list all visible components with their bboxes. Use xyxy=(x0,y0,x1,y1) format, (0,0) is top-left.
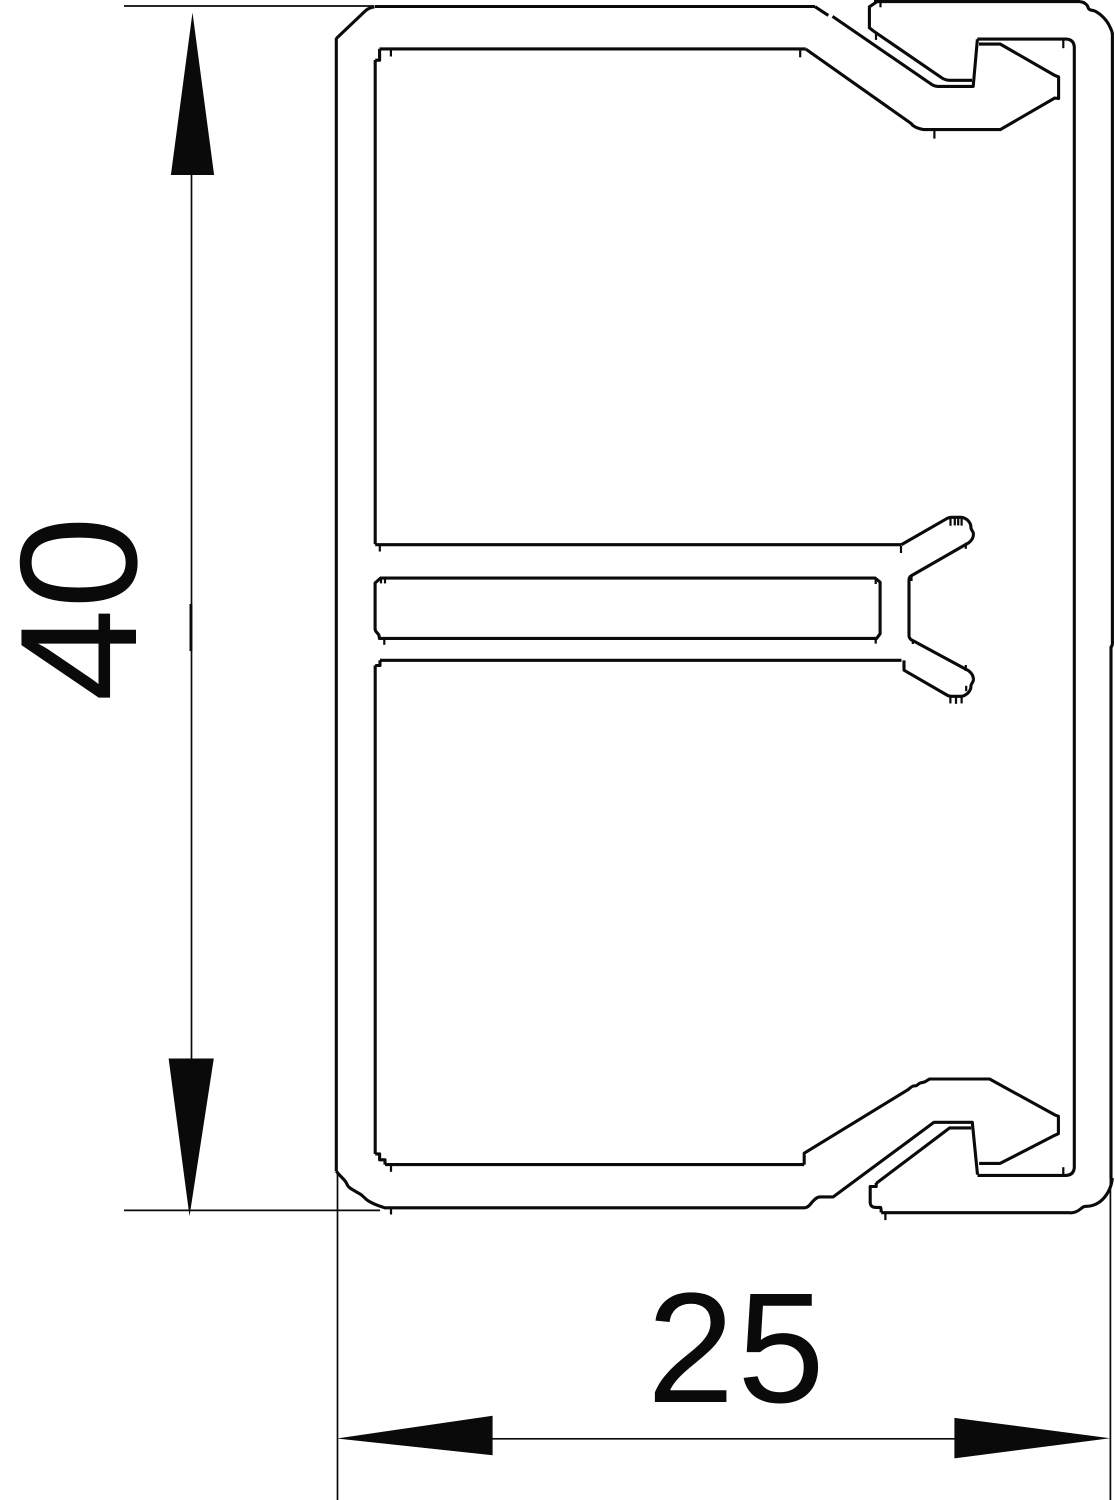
svg-text:25: 25 xyxy=(647,1261,828,1436)
svg-text:40: 40 xyxy=(0,516,172,701)
